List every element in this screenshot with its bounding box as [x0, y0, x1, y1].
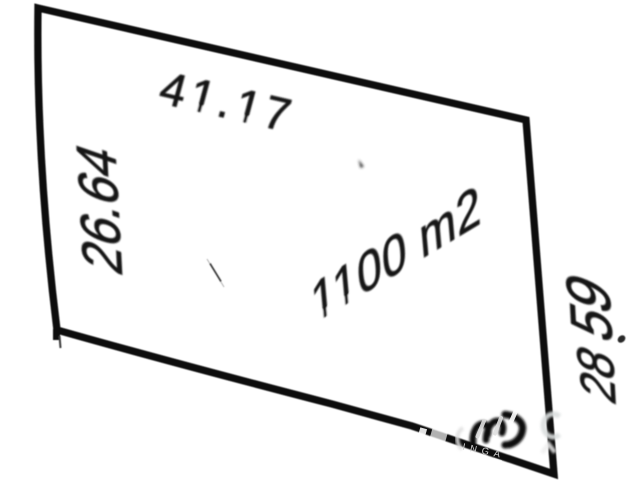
svg-text:41.17: 41.17: [154, 61, 300, 142]
svg-text:26.64: 26.64: [65, 136, 134, 282]
svg-text:28.59: 28.59: [553, 264, 628, 412]
